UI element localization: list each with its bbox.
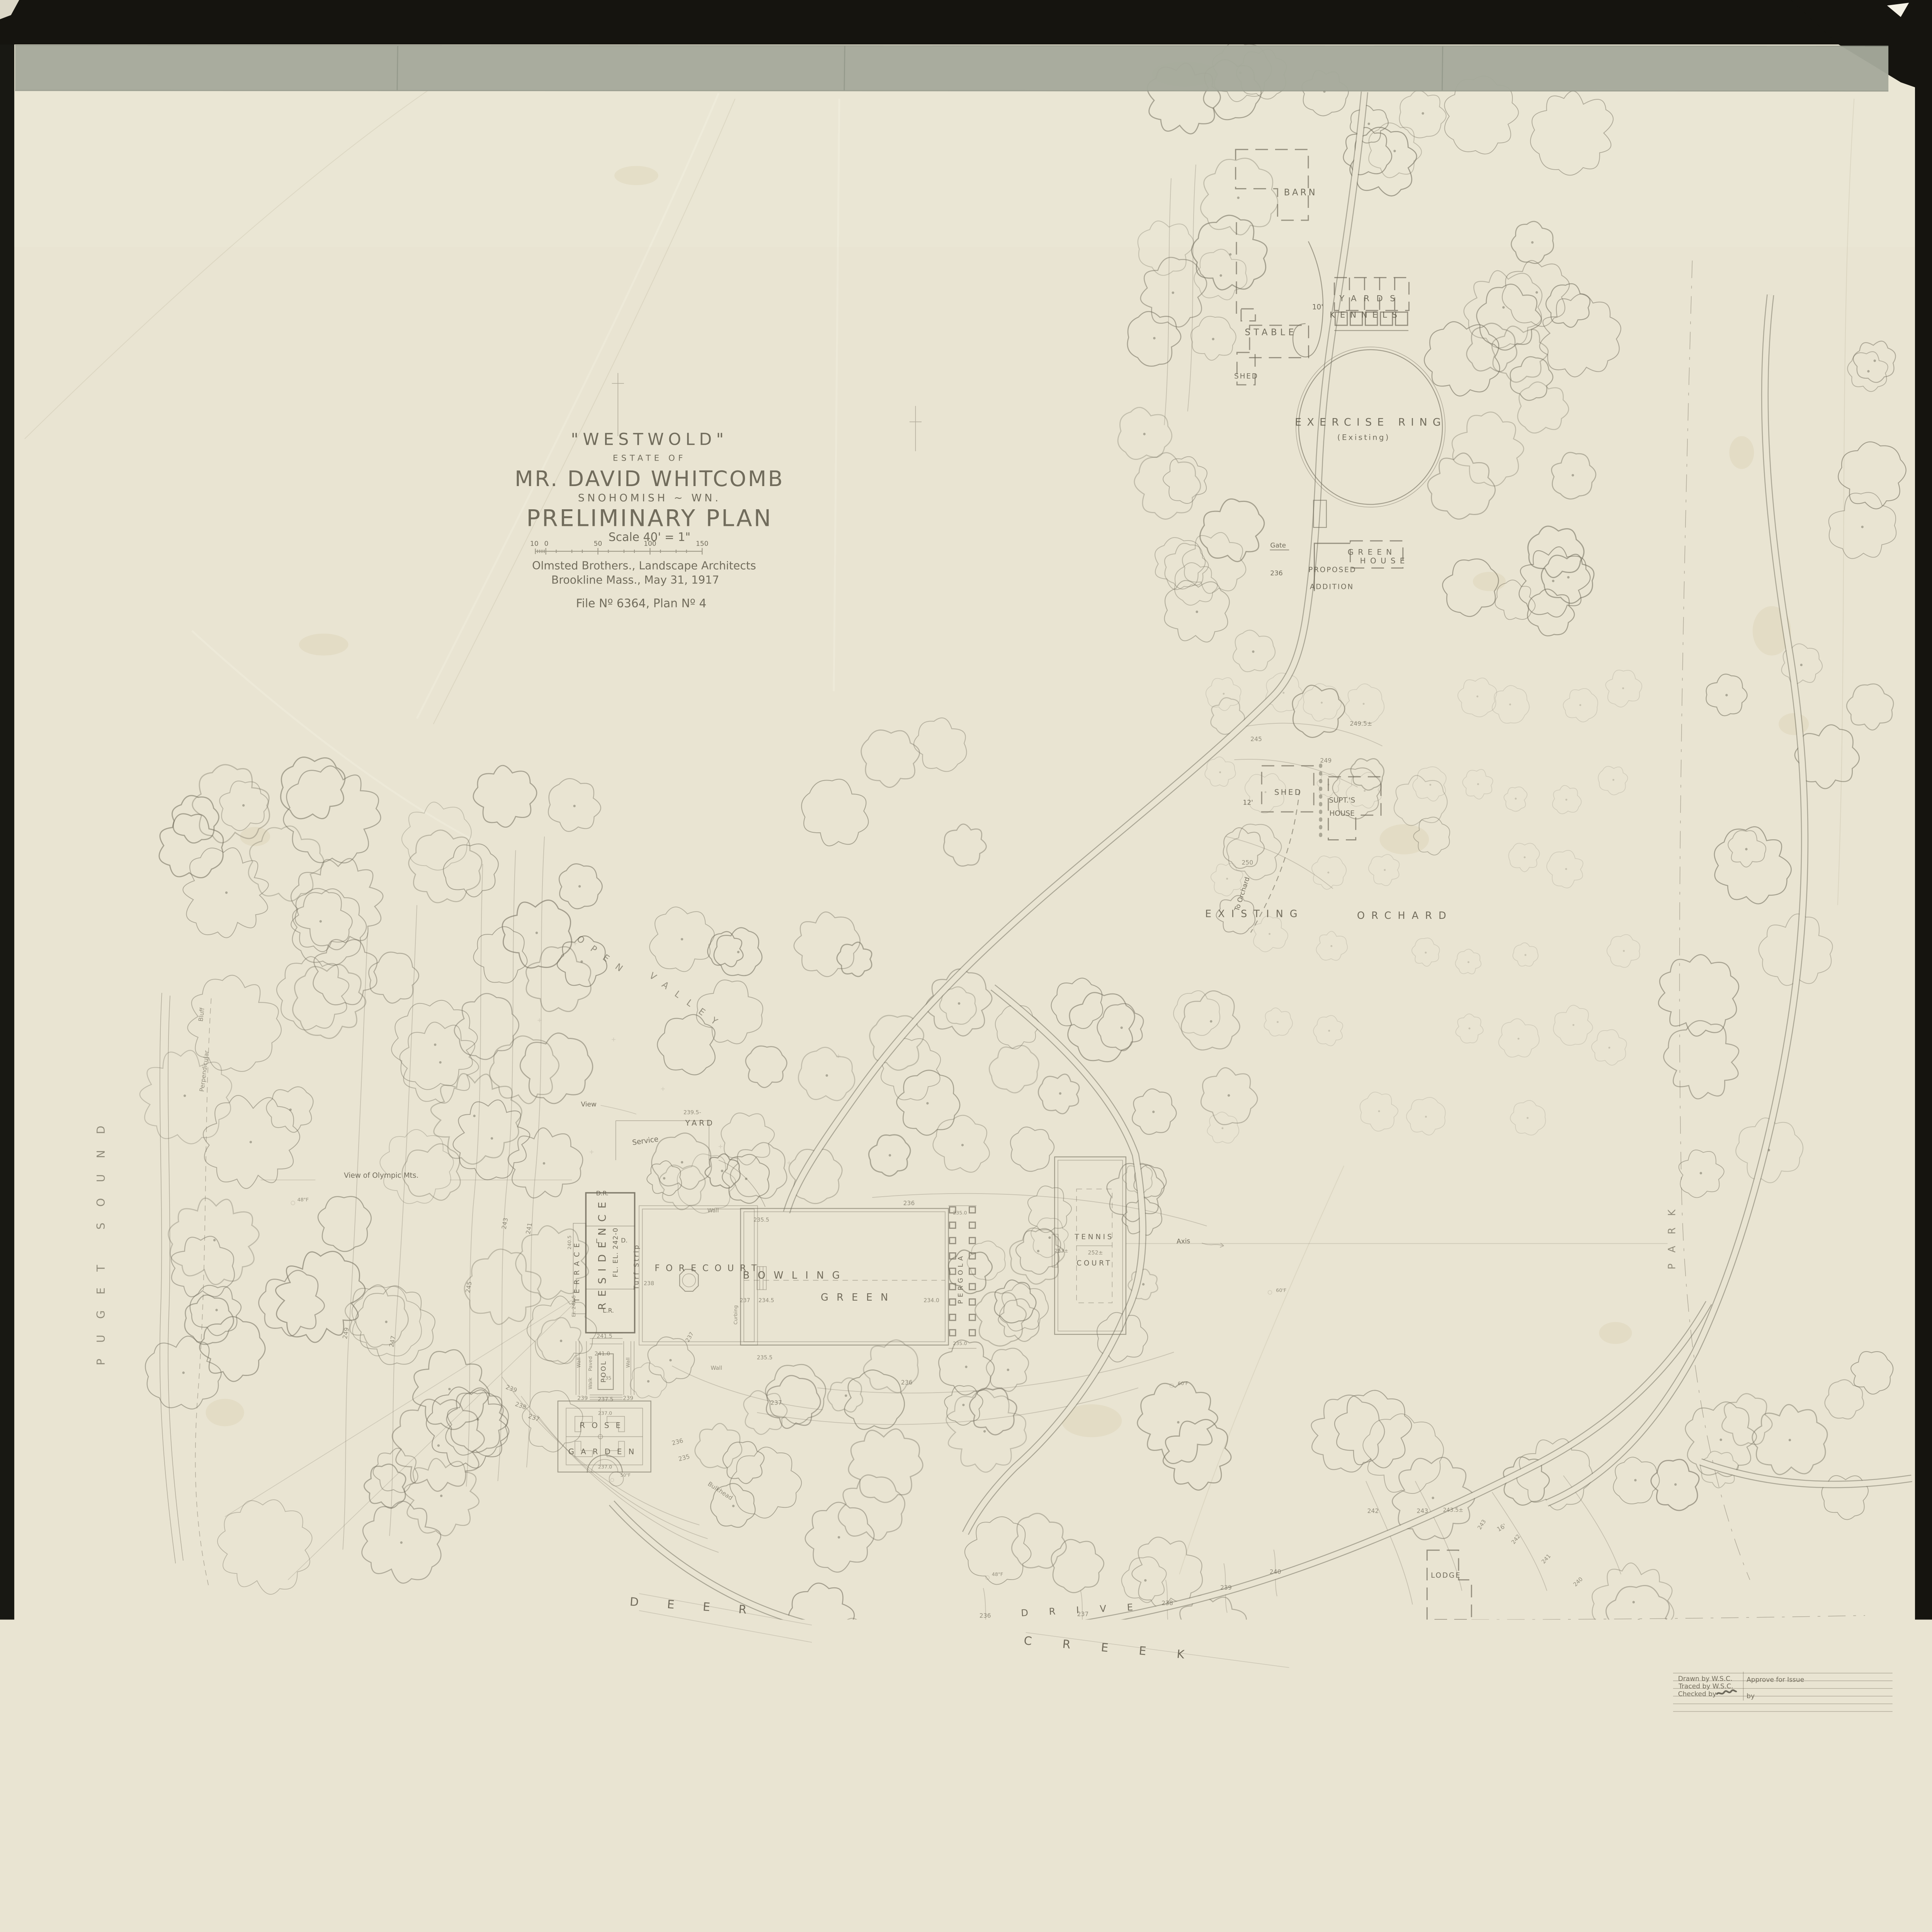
elev-235-5-n: 235.5 (753, 1217, 769, 1223)
garden-wall-w: Wall (576, 1357, 582, 1368)
proposed-label: PROPOSED (1308, 566, 1356, 574)
elev-253: 253± (1054, 1248, 1068, 1254)
contour-249: 249 (1320, 757, 1332, 764)
room-l: L. (596, 1238, 601, 1245)
tree-50f-label: 50"F (621, 1473, 631, 1478)
contour-237-s: 237 (770, 1400, 782, 1406)
addition-label: ADDITION (1310, 583, 1354, 591)
tree-48f-a: 48"F (297, 1197, 308, 1203)
road-width-10: 10' (1312, 303, 1323, 311)
elev-235-0-n: 235.0 (953, 1210, 967, 1216)
owner-name: MR. DAVID WHITCOMB (515, 467, 784, 492)
tape-strip-top (15, 45, 1888, 91)
contour-242-l: 242 (1367, 1507, 1379, 1514)
top-dark-band (0, 0, 1932, 44)
elev-237-green: 237 (740, 1298, 750, 1304)
contour-236-n: 236 (903, 1200, 915, 1207)
tree-60f-a: 60'F (1276, 1287, 1286, 1293)
floor-elevation: FL. EL. 242-0 (612, 1228, 620, 1277)
elev-241-0: 241.0 (594, 1351, 610, 1357)
exercise-ring-label: EXERCISE RING (1295, 417, 1446, 429)
contour-245: 245 (1250, 736, 1262, 743)
scale-tick-0: 0 (544, 540, 549, 548)
wall-label-north: Wall (707, 1207, 719, 1214)
lodge-label: LODGE (1431, 1571, 1461, 1580)
elev-239-w: 239 (577, 1395, 588, 1401)
elev-237-0-s: 237.0 (598, 1464, 612, 1470)
turf-strip-label: Turf Strip (633, 1243, 640, 1290)
elev-235-5-s: 235.5 (757, 1355, 773, 1361)
tree-60f-b: 60'F (1178, 1381, 1188, 1387)
scale-tick-150: 150 (696, 540, 708, 548)
spot-243-5: 243.5± (1443, 1507, 1463, 1514)
paved-label: Paved (588, 1356, 594, 1371)
orchard-label-2: ORCHARD (1357, 910, 1453, 922)
pergola-label: PERGOLA (957, 1253, 964, 1304)
location: SNOHOMISH ~ WN. (578, 492, 721, 504)
green-label: GREEN (821, 1292, 896, 1303)
file-number: File Nº 6364, Plan Nº 4 (576, 597, 707, 611)
scale-tick-100: 100 (644, 540, 656, 548)
scanned-site-plan: "WESTWOLD" ESTATE OF MR. DAVID WHITCOMB … (0, 0, 1932, 1759)
elev-234-5: 234.5 (759, 1298, 774, 1304)
barn-label: BARN (1284, 187, 1318, 197)
elev-234-0: 234.0 (923, 1298, 939, 1304)
elev-239-e: 239 (623, 1395, 633, 1401)
elev-241-5: 241.5 (597, 1333, 612, 1340)
gate-label: Gate (1270, 542, 1286, 549)
road-width-12: 12' (1243, 799, 1253, 807)
tree-48f-b: 48"F (992, 1572, 1003, 1578)
terrace-elev: El. 241.5 (571, 1295, 577, 1317)
kennels-label: KENNELS (1330, 310, 1402, 320)
supt-house-label-2: HOUSE (1330, 810, 1355, 818)
elev-235-0-s: 235.0 (953, 1341, 967, 1347)
firm-line1: Olmsted Brothers., Landscape Architects (532, 560, 756, 572)
axis-label: Axis (1177, 1237, 1190, 1245)
puget-sound-label: PUGET SOUND (95, 1110, 107, 1365)
residence-label: RESIDENCE (596, 1196, 608, 1310)
park-label: PARK (1667, 1198, 1678, 1269)
drawing-paper (14, 44, 1915, 1736)
scale-tick-50: 50 (594, 540, 602, 548)
contour-237-d: 237 (1077, 1611, 1088, 1617)
garden-wall-e: Wall (626, 1357, 631, 1368)
tennis-label: TENNIS (1074, 1233, 1114, 1241)
scale-tick-10: 10 (530, 540, 539, 548)
exercise-ring-note: (Existing) (1337, 433, 1390, 442)
paper-sheet (14, 44, 1915, 1736)
view-label: View (581, 1100, 596, 1108)
room-lr: L.R. (603, 1307, 614, 1314)
bowling-label: BOWLING (743, 1270, 848, 1281)
elev-239-5: 239.5- (684, 1109, 701, 1116)
elev-240-5: 240.5 (567, 1235, 573, 1250)
terrace-label: TERRACE (573, 1239, 581, 1303)
court-label: COURT (1077, 1259, 1112, 1267)
elev-237-5: 237.5 (598, 1396, 614, 1403)
wall-label-south: Wall (711, 1365, 722, 1371)
yard-label: YARD (685, 1119, 714, 1128)
elev-252: 252± (1088, 1250, 1103, 1256)
contour-243-l: 243 (1417, 1507, 1428, 1514)
curbing-label: Curbing (733, 1305, 739, 1325)
room-dr: D.R. (596, 1190, 609, 1197)
farm-shed-label: SHED (1234, 372, 1259, 381)
yards-label: YARDS (1339, 294, 1402, 303)
rose-garden-label: GARDEN (568, 1447, 641, 1456)
orchard-label-1: EXISTING (1205, 908, 1304, 920)
elev-237-0-n: 237.0 (598, 1410, 612, 1416)
estate-of: ESTATE OF (613, 454, 686, 463)
greenhouse-label-2: HOUSE (1360, 556, 1409, 565)
contour-236-farm: 236 (1270, 570, 1282, 577)
contour-239-d: 239 (1220, 1584, 1232, 1591)
contour-240-d: 240 (1270, 1568, 1281, 1575)
supt-house-label-1: SUPT.'S (1329, 796, 1355, 804)
room-d: D. (621, 1237, 628, 1244)
contour-236-s: 236 (901, 1379, 913, 1386)
stable-label: STABLE (1245, 327, 1297, 337)
elev-238: 238 (644, 1281, 654, 1287)
rose-label: ROSE (580, 1421, 627, 1430)
right-dark-band (1915, 0, 1932, 1759)
plan-type: PRELIMINARY PLAN (526, 505, 772, 532)
olympic-view-label: View of Olympic Mts. (344, 1172, 418, 1180)
plan-name: "WESTWOLD" (571, 430, 728, 449)
supt-shed-label: SHED (1274, 788, 1302, 797)
firm-line2: Brookline Mass., May 31, 1917 (551, 574, 719, 587)
walk-label: Walk (588, 1377, 594, 1389)
contour-236-d: 236 (980, 1612, 991, 1619)
greenhouse-label-1: GREEN (1348, 548, 1396, 556)
contour-250: 250 (1242, 859, 1253, 866)
elev-235-pool: 235 (602, 1375, 611, 1381)
contour-238-d: 238 (1162, 1600, 1173, 1607)
spot-249-5: 249.5± (1350, 720, 1372, 727)
